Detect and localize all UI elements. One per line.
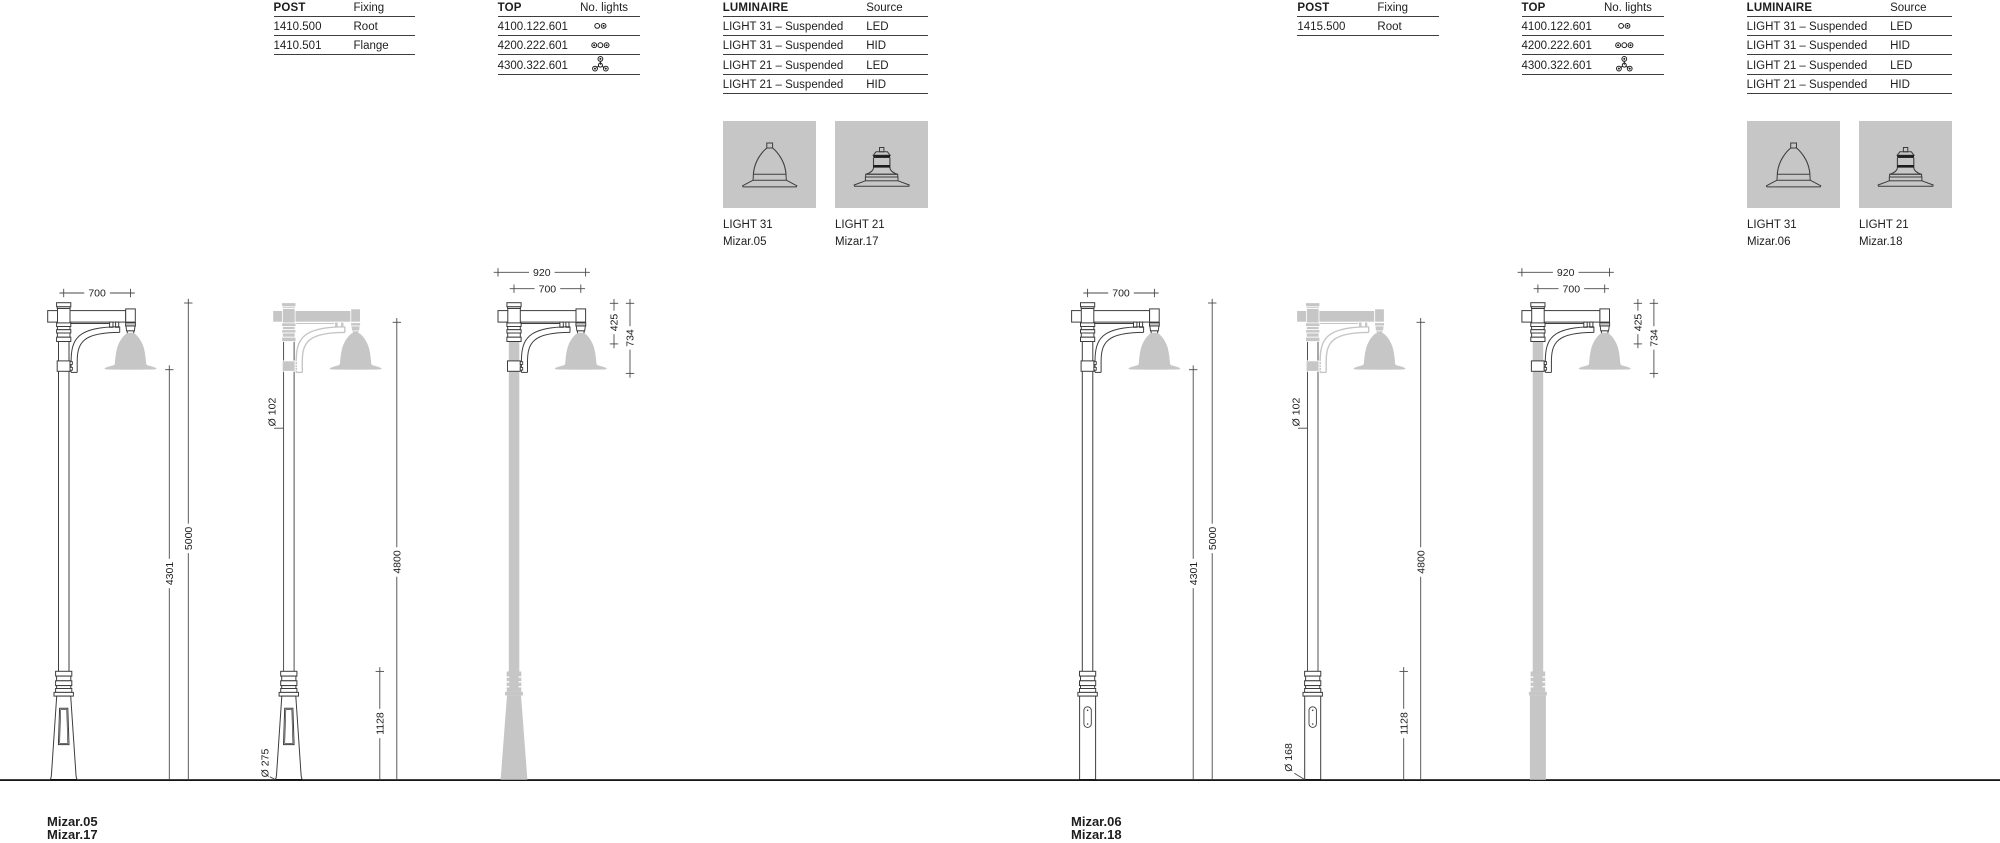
svg-text:4301: 4301 <box>164 562 176 586</box>
svg-text:1128: 1128 <box>374 712 386 735</box>
svg-text:700: 700 <box>88 288 106 300</box>
svg-text:Ø 102: Ø 102 <box>1291 398 1303 427</box>
svg-text:4301: 4301 <box>1188 562 1200 586</box>
svg-text:5000: 5000 <box>1207 527 1219 551</box>
svg-text:700: 700 <box>1112 288 1130 300</box>
svg-text:Ø 275: Ø 275 <box>260 749 272 778</box>
svg-text:920: 920 <box>533 267 551 279</box>
svg-text:734: 734 <box>625 329 637 347</box>
svg-text:Ø 102: Ø 102 <box>267 398 279 427</box>
svg-text:920: 920 <box>1557 267 1575 279</box>
svg-text:1128: 1128 <box>1398 712 1410 735</box>
svg-text:734: 734 <box>1649 329 1661 347</box>
svg-text:425: 425 <box>1633 314 1645 332</box>
svg-text:Ø 168: Ø 168 <box>1283 743 1295 772</box>
svg-text:700: 700 <box>539 283 557 295</box>
svg-text:700: 700 <box>1563 283 1581 295</box>
svg-text:5000: 5000 <box>183 527 195 551</box>
svg-text:425: 425 <box>609 314 621 332</box>
svg-text:4800: 4800 <box>391 550 403 574</box>
svg-text:4800: 4800 <box>1415 550 1427 574</box>
